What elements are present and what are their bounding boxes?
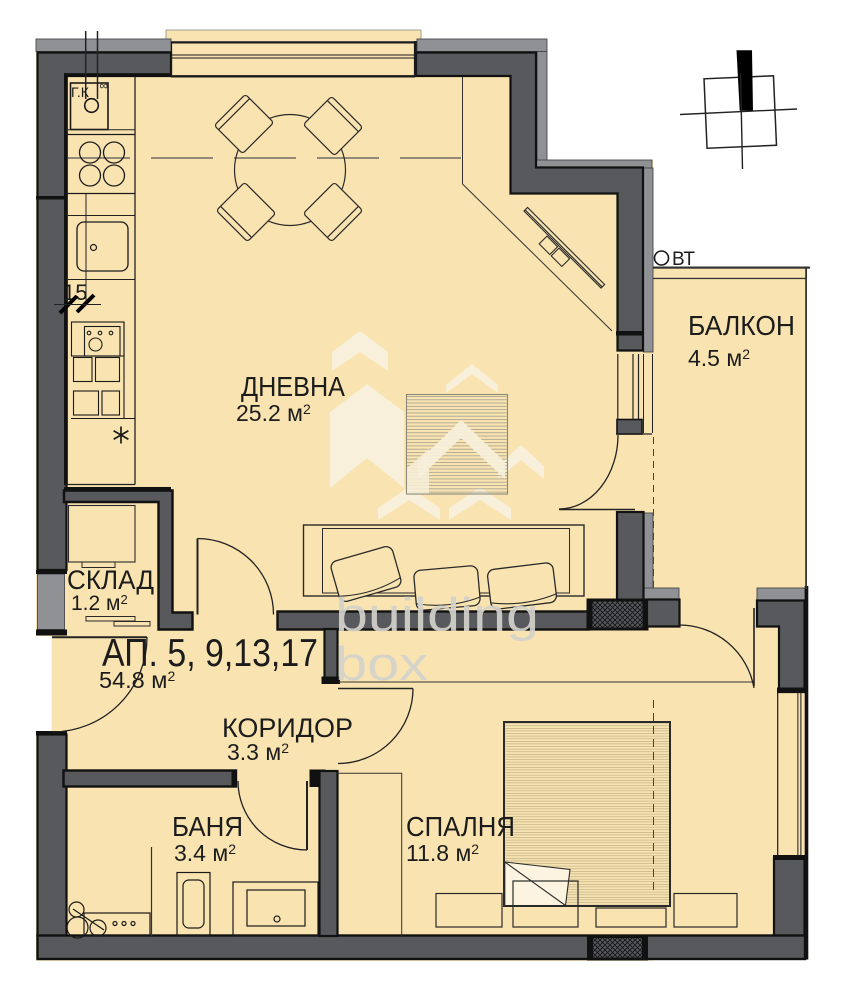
svg-text:3.3 м2: 3.3 м2 <box>227 739 289 765</box>
svg-text:ВТ: ВТ <box>672 249 695 270</box>
svg-text:БАЛКОН: БАЛКОН <box>688 310 795 341</box>
svg-text:11.8 м2: 11.8 м2 <box>406 840 479 866</box>
svg-text:СПАЛНЯ: СПАЛНЯ <box>406 811 515 842</box>
svg-text:∞: ∞ <box>100 79 109 93</box>
svg-text:ДНЕВНА: ДНЕВНА <box>241 371 346 402</box>
svg-text:3.4 м2: 3.4 м2 <box>174 840 236 866</box>
svg-text:4.5 м2: 4.5 м2 <box>688 345 750 371</box>
svg-text:БАНЯ: БАНЯ <box>172 811 243 842</box>
svg-text:15: 15 <box>63 280 87 305</box>
svg-text:building: building <box>335 588 539 641</box>
svg-text:box: box <box>335 637 428 690</box>
svg-text:1.2 м2: 1.2 м2 <box>71 592 128 615</box>
svg-text:54.8 м2: 54.8 м2 <box>99 667 175 693</box>
svg-text:Г.К: Г.К <box>71 84 90 100</box>
svg-text:25.2 м2: 25.2 м2 <box>236 400 311 426</box>
svg-text:СКЛАД: СКЛАД <box>67 565 154 595</box>
